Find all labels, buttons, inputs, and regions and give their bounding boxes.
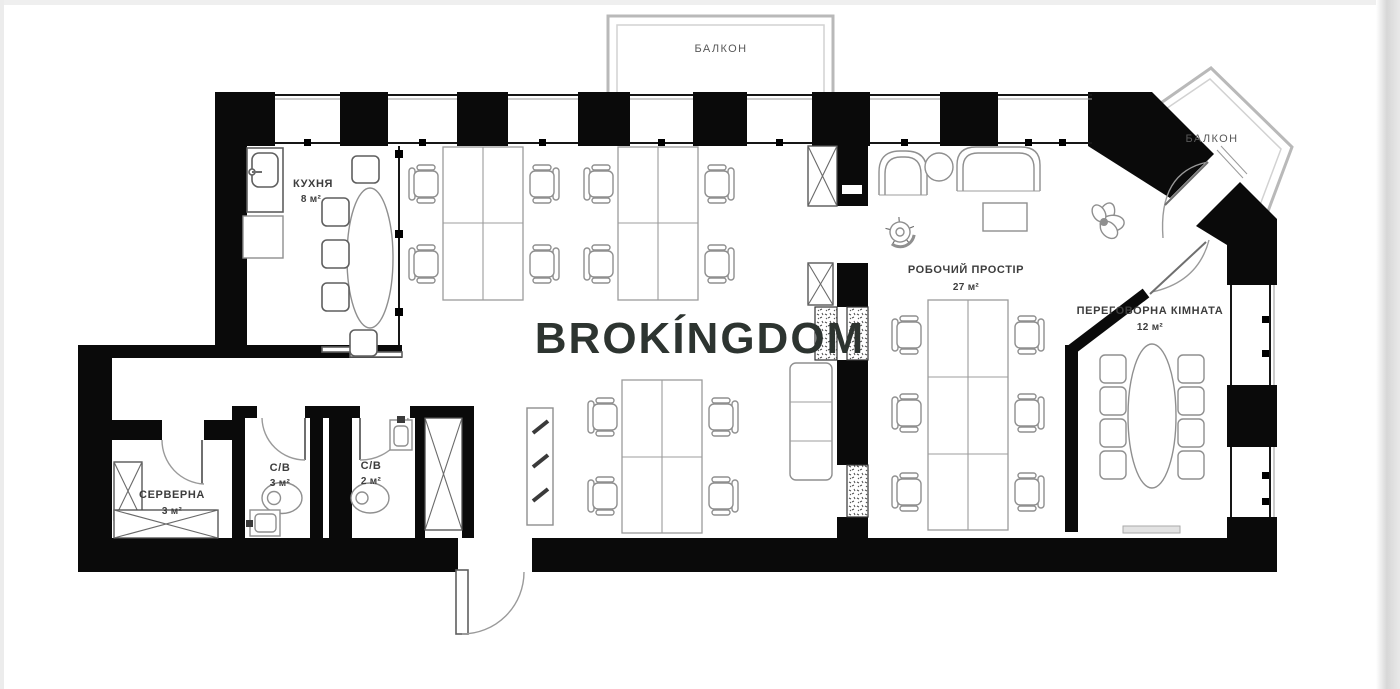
meeting-chair [1100,355,1126,383]
kitchen-chair [322,283,349,311]
room-label-server-room: СЕРВЕРНА [139,489,205,501]
plant [1089,201,1124,242]
kitchen-chair [352,156,379,183]
lounge-armchair [879,151,927,195]
meeting-chair [1178,419,1204,447]
brokingdom-watermark: BROKÍNGDOM [535,313,865,363]
photo-edge-top [0,0,1400,5]
room-area-bathroom-large: 3 м² [270,478,291,489]
kitchen-sink [247,148,283,212]
kitchen-table [347,188,393,328]
bathroom-large-door [262,418,305,460]
kitchen-chair [322,240,349,268]
meeting-chair [1100,451,1126,479]
meeting-chair [1178,387,1204,415]
room-label-kitchen: КУХНЯ [293,178,333,190]
lounge-sofa [957,147,1040,191]
lounge [879,147,1125,250]
room-label-work-space: РОБОЧИЙ ПРОСТІР [908,263,1024,276]
room-area-work-space: 27 м² [953,282,979,293]
desk-cluster-b [584,147,734,300]
floor-plan-page: БАЛКОН БАЛКОН КУХНЯ 8 м² РОБОЧИЙ ПРОСТІР… [0,0,1400,689]
balcony-right-label: БАЛКОН [1186,133,1239,145]
vent-shaft [847,465,868,517]
desk-cluster-a [409,147,559,300]
coat-rack [527,408,553,525]
balcony-top-label: БАЛКОН [695,43,748,55]
meeting-table [1128,344,1176,488]
entrance-door [456,570,524,634]
room-label-meeting-room: ПЕРЕГОВОРНА КІМНАТА [1077,305,1224,317]
photo-edge-right [1376,0,1400,689]
desk-cluster-c [588,380,738,533]
floor-plan-canvas: БАЛКОН БАЛКОН КУХНЯ 8 м² РОБОЧИЙ ПРОСТІР… [0,0,1400,689]
meeting-chair [1100,387,1126,415]
meeting-chair [1178,451,1204,479]
side-table [925,153,953,181]
room-area-server-room: 3 м² [162,506,183,517]
meeting-chair [1178,355,1204,383]
storage-cabinet [790,363,832,480]
photo-edge-left [0,0,4,689]
room-label-bathroom-large: С/В [270,462,291,474]
meeting-room-door [1150,240,1209,294]
meeting-chair [1100,419,1126,447]
kitchen-counter [243,216,283,258]
meeting-room-furniture [1100,344,1204,533]
kitchen-chair [350,330,377,356]
office-chair [883,213,919,250]
kitchen-chair [322,198,349,226]
threshold [1123,526,1180,533]
work-space-desks [892,300,1044,530]
coffee-table [983,203,1027,231]
room-area-kitchen: 8 м² [301,194,322,205]
room-area-meeting-room: 12 м² [1137,322,1163,333]
bathroom-large-fixtures [246,483,302,537]
server-room-door [162,440,204,484]
room-label-bathroom-small: С/В [361,460,382,472]
room-area-bathroom-small: 2 м² [361,476,382,487]
wardrobe-closet [425,418,462,530]
